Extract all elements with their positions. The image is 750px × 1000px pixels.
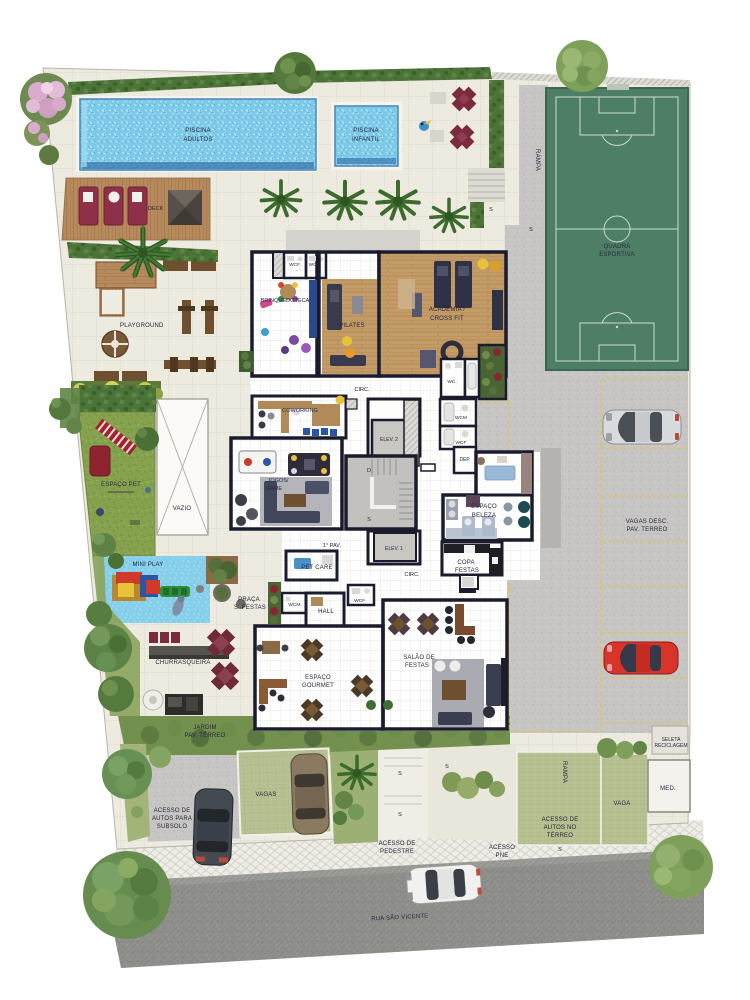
svg-text:WCF.: WCF.	[354, 598, 366, 604]
svg-text:ACESSO DE: ACESSO DE	[379, 841, 416, 847]
svg-text:BELEZA: BELEZA	[472, 513, 496, 519]
svg-text:S: S	[398, 812, 402, 818]
svg-text:ACESSO: ACESSO	[489, 845, 515, 851]
svg-text:WC.: WC.	[447, 379, 456, 385]
svg-text:PAV. TÉRREO: PAV. TÉRREO	[185, 732, 226, 739]
svg-text:VAGAS: VAGAS	[255, 792, 276, 798]
svg-text:PEDESTRE: PEDESTRE	[380, 849, 414, 855]
svg-text:COPA: COPA	[457, 560, 474, 566]
svg-text:PISCINA: PISCINA	[353, 128, 378, 134]
svg-text:QUADRA: QUADRA	[604, 244, 631, 250]
svg-text:COWORKING: COWORKING	[282, 408, 318, 414]
svg-text:RECICLAGEM: RECICLAGEM	[654, 743, 687, 749]
svg-text:S: S	[445, 764, 449, 770]
svg-text:CHURRASQUEIRA: CHURRASQUEIRA	[155, 660, 210, 666]
svg-text:WCM.: WCM.	[288, 602, 301, 608]
svg-text:ESPORTIVA: ESPORTIVA	[599, 252, 635, 258]
svg-text:ESPAÇO: ESPAÇO	[471, 504, 497, 510]
svg-text:AUTOS NO: AUTOS NO	[544, 825, 577, 831]
svg-text:PISCINA: PISCINA	[185, 128, 210, 134]
svg-text:WCM: WCM	[455, 415, 467, 421]
svg-text:S. FESTAS: S. FESTAS	[234, 605, 266, 611]
svg-text:MED.: MED.	[660, 786, 676, 792]
svg-text:WCF: WCF	[456, 440, 467, 446]
svg-text:ESPAÇO PET: ESPAÇO PET	[101, 482, 141, 488]
svg-text:DEP.: DEP.	[459, 457, 470, 463]
svg-text:RAMPA: RAMPA	[534, 149, 540, 171]
svg-text:INFANTIL: INFANTIL	[352, 137, 380, 143]
svg-text:FESTAS: FESTAS	[405, 663, 429, 669]
svg-text:GOURMET: GOURMET	[302, 683, 334, 689]
svg-text:ADULTOS: ADULTOS	[183, 137, 212, 143]
svg-text:JARDIM: JARDIM	[193, 725, 217, 731]
svg-text:ACESSO DE: ACESSO DE	[154, 808, 191, 814]
svg-text:PAV. TERREO: PAV. TERREO	[627, 527, 668, 533]
svg-text:SUBSOLO: SUBSOLO	[157, 824, 188, 830]
svg-text:VAGAS DESC.: VAGAS DESC.	[626, 519, 669, 525]
svg-text:S: S	[367, 517, 371, 523]
svg-text:PILATES: PILATES	[339, 323, 365, 329]
svg-text:FESTAS: FESTAS	[455, 568, 479, 574]
svg-text:VAZIO: VAZIO	[173, 506, 192, 512]
svg-text:ACADEMIA /: ACADEMIA /	[429, 307, 465, 313]
svg-text:JOGOS/: JOGOS/	[268, 478, 289, 484]
svg-text:PNE: PNE	[496, 853, 509, 859]
svg-text:SALÃO DE: SALÃO DE	[403, 654, 435, 661]
svg-text:DECK: DECK	[148, 206, 164, 212]
svg-text:D: D	[367, 468, 371, 474]
svg-text:CROSS FIT: CROSS FIT	[430, 316, 464, 322]
svg-text:PLAYGROUND: PLAYGROUND	[120, 323, 164, 329]
svg-text:ELEV. 2: ELEV. 2	[380, 437, 398, 443]
svg-text:GAME: GAME	[266, 486, 283, 492]
svg-text:CIRC.: CIRC.	[355, 387, 370, 393]
svg-text:CIRC.: CIRC.	[405, 572, 420, 578]
svg-text:ESPAÇO: ESPAÇO	[305, 675, 331, 681]
svg-text:VAGA: VAGA	[613, 801, 630, 807]
svg-text:BRINQUEDOTECA: BRINQUEDOTECA	[261, 298, 310, 304]
svg-text:ELEV. 1: ELEV. 1	[385, 546, 403, 552]
svg-text:PET CARE: PET CARE	[301, 565, 333, 571]
svg-text:TÉRREO: TÉRREO	[547, 832, 573, 839]
svg-text:RAMPA: RAMPA	[561, 761, 567, 783]
svg-text:S: S	[529, 227, 533, 233]
svg-text:S: S	[398, 771, 402, 777]
svg-text:HALL: HALL	[318, 609, 334, 615]
svg-text:AUTOS PARA: AUTOS PARA	[152, 816, 192, 822]
svg-text:S: S	[489, 207, 493, 213]
svg-text:WCF.: WCF.	[289, 262, 301, 268]
svg-text:S: S	[558, 847, 562, 853]
svg-text:1° PAV.: 1° PAV.	[323, 543, 341, 549]
svg-text:PRAÇA: PRAÇA	[238, 597, 260, 603]
svg-text:ACESSO DE: ACESSO DE	[542, 817, 579, 823]
svg-text:MINI PLAY: MINI PLAY	[132, 562, 163, 568]
